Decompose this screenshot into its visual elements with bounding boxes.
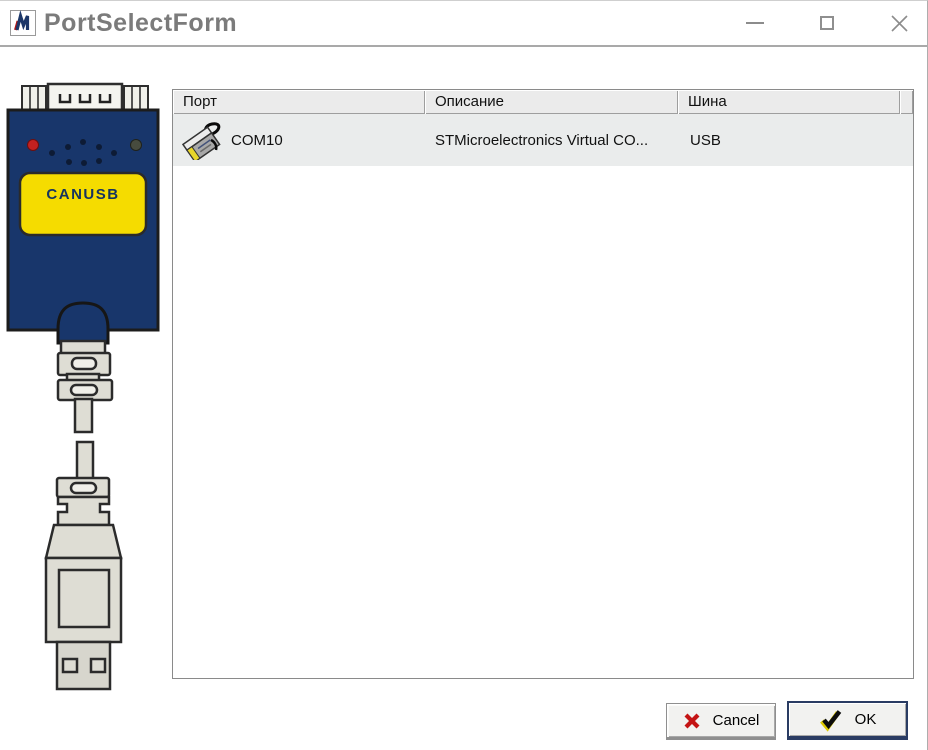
device-label-badge [20,173,146,235]
window-controls [741,1,913,45]
port-list: Порт Описание Шина COM10 [172,89,914,679]
close-button[interactable] [885,9,913,37]
column-header-port[interactable]: Порт [173,90,425,114]
port-name: COM10 [231,132,283,149]
device-label-text: CANUSB [46,186,119,203]
usb-cable-and-plug [46,341,121,689]
ok-button[interactable]: OK [787,701,908,738]
port-list-header: Порт Описание Шина [173,90,913,114]
port-select-dialog: PortSelectForm [0,0,928,750]
close-icon [890,14,909,33]
column-header-description[interactable]: Описание [425,90,678,114]
description-cell: STMicroelectronics Virtual CO... [425,132,678,149]
column-header-bus[interactable]: Шина [678,90,900,114]
serial-port-icon [181,120,221,160]
minimize-button[interactable] [741,9,769,37]
port-list-row[interactable]: COM10 STMicroelectronics Virtual CO... U… [173,114,913,166]
minimize-icon [746,22,764,24]
red-x-icon [683,712,701,730]
check-icon [819,708,843,732]
canusb-device-illustration: CANUSB [0,81,170,701]
app-logo-icon [10,10,36,36]
title-bar: PortSelectForm [0,1,927,47]
cable-dome [58,303,108,343]
window-title: PortSelectForm [44,9,237,38]
db9-connector [22,84,148,112]
column-header-filler [900,90,913,114]
cancel-button-label: Cancel [713,712,760,729]
bus-cell: USB [678,132,900,149]
ok-button-label: OK [855,711,877,728]
maximize-icon [820,16,834,30]
cancel-button[interactable]: Cancel [666,703,776,738]
port-cell: COM10 [173,120,425,160]
maximize-button[interactable] [813,9,841,37]
